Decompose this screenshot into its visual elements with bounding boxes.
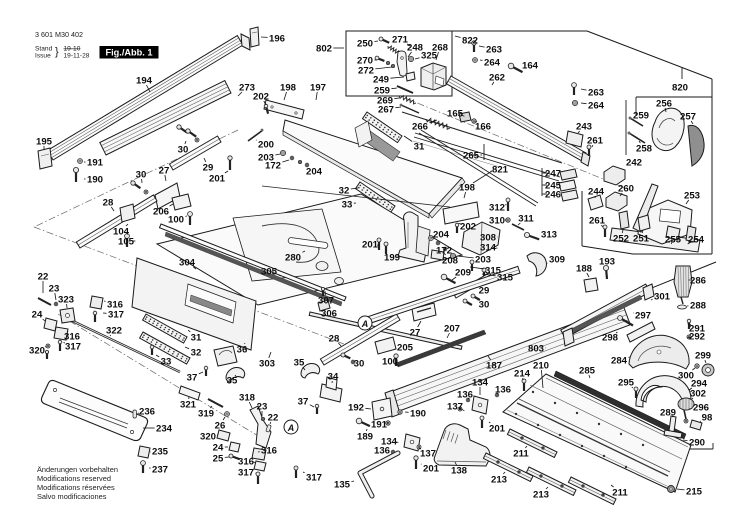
svg-text:201: 201 — [209, 174, 226, 185]
svg-text:201: 201 — [489, 424, 506, 435]
svg-text:258: 258 — [636, 144, 653, 155]
svg-text:260: 260 — [618, 184, 634, 195]
svg-text:311: 311 — [518, 214, 534, 225]
svg-text:253: 253 — [684, 191, 700, 202]
svg-text:325: 325 — [421, 51, 438, 62]
svg-text:207: 207 — [444, 324, 460, 335]
svg-text:137: 137 — [447, 402, 463, 413]
svg-text:32: 32 — [191, 348, 202, 359]
svg-text:313: 313 — [541, 230, 557, 241]
svg-text:202: 202 — [253, 92, 269, 103]
svg-text:310: 310 — [489, 216, 505, 227]
svg-text:304: 304 — [179, 258, 196, 269]
svg-text:302: 302 — [690, 389, 706, 400]
svg-text:196: 196 — [269, 34, 285, 45]
svg-text:30: 30 — [479, 300, 490, 311]
svg-text:821: 821 — [492, 165, 509, 176]
svg-text:316: 316 — [261, 446, 277, 457]
svg-text:242: 242 — [626, 158, 642, 169]
svg-text:267: 267 — [378, 105, 394, 116]
svg-text:264: 264 — [484, 58, 501, 69]
svg-text:288: 288 — [690, 301, 707, 312]
svg-text:210: 210 — [533, 361, 549, 372]
svg-text:37: 37 — [187, 373, 198, 384]
svg-text:25: 25 — [213, 454, 224, 465]
svg-text:29: 29 — [203, 163, 214, 174]
svg-text:100: 100 — [168, 215, 184, 226]
svg-text:312: 312 — [489, 203, 505, 214]
svg-text:263: 263 — [588, 88, 604, 99]
svg-text:30: 30 — [354, 359, 365, 370]
svg-text:22: 22 — [268, 413, 279, 424]
svg-text:98: 98 — [702, 413, 713, 424]
svg-text:303: 303 — [259, 359, 275, 370]
svg-text:214: 214 — [514, 369, 531, 380]
svg-text:204: 204 — [306, 167, 323, 178]
svg-text:208: 208 — [442, 256, 459, 267]
svg-text:194: 194 — [136, 76, 153, 87]
svg-text:298: 298 — [602, 333, 619, 344]
svg-text:134: 134 — [472, 378, 489, 389]
svg-text:263: 263 — [486, 45, 502, 56]
svg-text:322: 322 — [106, 326, 122, 337]
svg-text:201: 201 — [423, 464, 440, 475]
svg-text:262: 262 — [489, 73, 505, 84]
svg-text:235: 235 — [152, 447, 169, 458]
svg-text:265: 265 — [463, 151, 480, 162]
svg-text:138: 138 — [451, 466, 468, 477]
svg-text:30: 30 — [136, 170, 147, 181]
svg-text:289: 289 — [660, 408, 676, 419]
svg-text:105: 105 — [118, 237, 135, 248]
svg-text:297: 297 — [635, 311, 651, 322]
svg-text:191: 191 — [371, 420, 388, 431]
svg-text:28: 28 — [329, 334, 340, 345]
svg-text:264: 264 — [588, 101, 605, 112]
svg-text:205: 205 — [397, 343, 414, 354]
svg-text:190: 190 — [87, 175, 103, 186]
svg-text:136: 136 — [374, 446, 390, 457]
svg-text:213: 213 — [491, 475, 507, 486]
svg-text:317: 317 — [65, 342, 81, 353]
svg-text:301: 301 — [654, 292, 671, 303]
svg-text:266: 266 — [412, 122, 428, 133]
svg-text:244: 244 — [588, 187, 605, 198]
svg-text:23: 23 — [257, 402, 268, 413]
svg-text:317: 317 — [108, 310, 124, 321]
svg-text:135: 135 — [334, 480, 351, 491]
svg-text:Modifications réservées: Modifications réservées — [37, 483, 115, 492]
svg-text:290: 290 — [689, 438, 705, 449]
svg-text:820: 820 — [672, 83, 688, 94]
svg-text:317: 317 — [306, 473, 322, 484]
svg-text:195: 195 — [36, 137, 53, 148]
svg-text:199: 199 — [384, 253, 400, 264]
svg-text:307: 307 — [318, 296, 334, 307]
svg-text:Modifications reserved: Modifications reserved — [37, 474, 111, 483]
svg-text:28: 28 — [103, 198, 114, 209]
svg-text:32: 32 — [339, 186, 350, 197]
svg-text:23: 23 — [49, 284, 60, 295]
svg-text:26: 26 — [215, 421, 226, 432]
svg-text:Stand: Stand — [35, 46, 53, 53]
svg-text:201: 201 — [362, 240, 379, 251]
svg-text:314: 314 — [480, 243, 497, 254]
svg-text:237: 237 — [152, 465, 168, 476]
svg-text:22: 22 — [38, 272, 49, 283]
svg-text:Issue: Issue — [35, 53, 51, 60]
svg-text:165: 165 — [447, 109, 464, 120]
svg-text:29: 29 — [479, 286, 490, 297]
svg-text:Salvo modificaciones: Salvo modificaciones — [37, 492, 107, 501]
svg-text:206: 206 — [153, 207, 169, 218]
svg-text:191: 191 — [87, 158, 104, 169]
svg-text:33: 33 — [161, 357, 172, 368]
svg-text:254: 254 — [688, 235, 705, 246]
svg-text:35: 35 — [294, 358, 305, 369]
svg-text:188: 188 — [576, 264, 593, 275]
svg-text:100: 100 — [382, 357, 398, 368]
svg-text:203: 203 — [475, 255, 491, 266]
svg-text:802: 802 — [316, 44, 332, 55]
svg-text:252: 252 — [613, 234, 629, 245]
svg-text:316: 316 — [238, 457, 254, 468]
svg-text:803: 803 — [528, 344, 544, 355]
svg-text:3 601 M30 402: 3 601 M30 402 — [35, 30, 83, 39]
svg-text:24: 24 — [32, 310, 43, 321]
svg-text:305: 305 — [261, 267, 278, 278]
svg-text:317: 317 — [238, 468, 254, 479]
svg-text:323: 323 — [58, 295, 74, 306]
svg-text:Änderungen vorbehalten: Änderungen vorbehalten — [37, 465, 118, 474]
svg-text:306: 306 — [321, 309, 337, 320]
svg-text:259: 259 — [633, 111, 649, 122]
svg-text:261: 261 — [587, 136, 604, 147]
svg-text:}: } — [55, 46, 59, 58]
svg-text:27: 27 — [410, 328, 421, 339]
svg-text:A: A — [361, 319, 369, 329]
svg-text:822: 822 — [462, 36, 478, 47]
svg-text:36: 36 — [237, 345, 248, 356]
svg-text:247: 247 — [545, 169, 561, 180]
svg-text:190: 190 — [410, 409, 426, 420]
svg-text:211: 211 — [513, 449, 529, 460]
svg-text:309: 309 — [549, 255, 565, 266]
svg-text:A: A — [287, 423, 295, 433]
svg-text:192: 192 — [348, 403, 364, 414]
svg-text:261: 261 — [589, 216, 606, 227]
svg-text:Fig./Abb. 1: Fig./Abb. 1 — [106, 48, 153, 58]
svg-text:172: 172 — [436, 246, 452, 257]
svg-text:211: 211 — [612, 488, 628, 499]
svg-text:189: 189 — [357, 432, 373, 443]
svg-text:295: 295 — [618, 378, 635, 389]
svg-text:31: 31 — [191, 333, 202, 344]
svg-text:213: 213 — [533, 490, 549, 501]
svg-text:299: 299 — [695, 351, 711, 362]
svg-text:272: 272 — [358, 66, 374, 77]
svg-text:257: 257 — [680, 112, 696, 123]
svg-text:136: 136 — [457, 390, 473, 401]
svg-text:37: 37 — [298, 397, 309, 408]
svg-text:315: 315 — [497, 273, 514, 284]
svg-text:285: 285 — [579, 366, 596, 377]
svg-text:198: 198 — [459, 183, 476, 194]
svg-text:19-11-28: 19-11-28 — [64, 53, 90, 60]
svg-text:321: 321 — [180, 400, 197, 411]
svg-text:249: 249 — [373, 75, 389, 86]
svg-text:284: 284 — [611, 356, 628, 367]
svg-text:187: 187 — [486, 361, 502, 372]
svg-text:136: 136 — [495, 385, 511, 396]
svg-text:319: 319 — [198, 409, 214, 420]
svg-text:320: 320 — [29, 346, 45, 357]
svg-text:200: 200 — [258, 140, 274, 151]
svg-text:320: 320 — [200, 432, 216, 443]
svg-text:33: 33 — [342, 200, 353, 211]
svg-text:24: 24 — [213, 443, 224, 454]
svg-text:166: 166 — [475, 122, 491, 133]
svg-text:35: 35 — [227, 376, 238, 387]
svg-text:197: 197 — [310, 83, 326, 94]
svg-text:236: 236 — [139, 407, 155, 418]
svg-text:318: 318 — [239, 393, 256, 404]
svg-text:19-10: 19-10 — [64, 46, 81, 53]
svg-text:27: 27 — [159, 166, 170, 177]
svg-text:34: 34 — [328, 372, 339, 383]
svg-text:246: 246 — [545, 190, 561, 201]
svg-text:137: 137 — [420, 449, 436, 460]
svg-text:251: 251 — [633, 234, 650, 245]
svg-text:198: 198 — [280, 83, 297, 94]
svg-text:172: 172 — [265, 161, 281, 172]
svg-text:250: 250 — [357, 39, 373, 50]
svg-text:234: 234 — [156, 424, 173, 435]
svg-text:31: 31 — [414, 142, 425, 153]
svg-text:202: 202 — [460, 222, 476, 233]
svg-text:280: 280 — [285, 253, 301, 264]
svg-text:215: 215 — [686, 487, 703, 498]
svg-text:286: 286 — [690, 276, 706, 287]
svg-text:292: 292 — [689, 332, 705, 343]
svg-text:30: 30 — [178, 145, 189, 156]
svg-text:204: 204 — [433, 230, 450, 241]
svg-text:209: 209 — [455, 268, 471, 279]
svg-text:193: 193 — [599, 257, 615, 268]
svg-text:256: 256 — [656, 99, 672, 110]
svg-text:164: 164 — [522, 61, 539, 72]
svg-text:243: 243 — [576, 122, 592, 133]
svg-text:255: 255 — [665, 235, 682, 246]
